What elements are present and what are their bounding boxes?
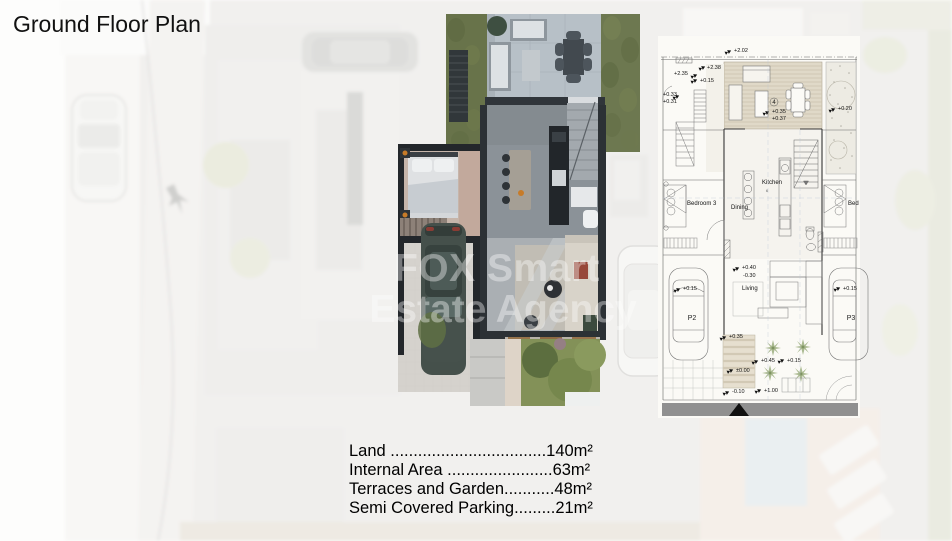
svg-text:FOX Smart: FOX Smart bbox=[394, 247, 600, 290]
svg-text:+0.31: +0.31 bbox=[663, 99, 677, 105]
svg-text:+2.02: +2.02 bbox=[734, 48, 748, 54]
svg-text:Kitchen: Kitchen bbox=[762, 180, 782, 186]
svg-text:+0.35: +0.35 bbox=[772, 109, 786, 115]
svg-text:+0.40: +0.40 bbox=[742, 265, 756, 271]
svg-text:-0.30: -0.30 bbox=[743, 273, 756, 279]
svg-text:P2: P2 bbox=[688, 315, 697, 322]
svg-text:Ground Floor Plan: Ground Floor Plan bbox=[13, 11, 201, 37]
svg-text:+0.35: +0.35 bbox=[729, 334, 743, 340]
svg-text:±0.00: ±0.00 bbox=[736, 368, 750, 374]
svg-text:+2.35: +2.35 bbox=[674, 71, 688, 77]
svg-text:Bedroom 3: Bedroom 3 bbox=[687, 201, 717, 207]
svg-text:+2.38: +2.38 bbox=[707, 65, 721, 71]
svg-text:Land .........................: Land ..................................1… bbox=[349, 442, 593, 460]
svg-text:Internal Area ................: Internal Area .......................63m… bbox=[349, 461, 591, 479]
svg-text:Estate Agency: Estate Agency bbox=[369, 288, 637, 331]
svg-text:+0.20: +0.20 bbox=[838, 106, 852, 112]
svg-text:+0.15: +0.15 bbox=[843, 286, 857, 292]
svg-text:Bed: Bed bbox=[848, 201, 859, 207]
svg-text:P3: P3 bbox=[847, 315, 856, 322]
svg-text:Terraces and Garden...........: Terraces and Garden...........48m² bbox=[349, 480, 593, 498]
svg-text:Dining: Dining bbox=[731, 205, 748, 211]
svg-text:+0.15: +0.15 bbox=[683, 286, 697, 292]
svg-text:Living: Living bbox=[742, 286, 758, 292]
svg-text:+1.00: +1.00 bbox=[764, 388, 778, 394]
svg-text:+0.37: +0.37 bbox=[772, 116, 786, 122]
svg-text:Semi Covered Parking.........2: Semi Covered Parking.........21m² bbox=[349, 499, 593, 517]
svg-text:+0.15: +0.15 bbox=[787, 358, 801, 364]
svg-text:-0.10: -0.10 bbox=[732, 389, 745, 395]
svg-text:+0.15: +0.15 bbox=[700, 78, 714, 84]
